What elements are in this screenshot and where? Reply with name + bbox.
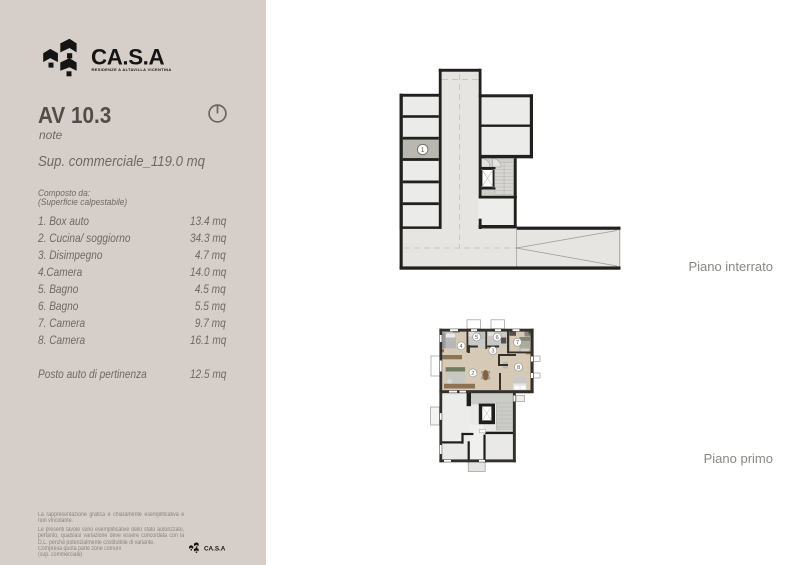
svg-text:3: 3 <box>491 348 494 355</box>
svg-text:CA.S.A: CA.S.A <box>91 45 164 70</box>
svg-text:1: 1 <box>421 147 425 154</box>
svg-text:6: 6 <box>496 334 499 341</box>
svg-text:RESIDENZE A ALTAVILLA VICENTIN: RESIDENZE A ALTAVILLA VICENTINA <box>92 67 172 72</box>
svg-text:8: 8 <box>517 364 520 371</box>
svg-text:CA.S.A: CA.S.A <box>204 546 226 553</box>
svg-text:5: 5 <box>475 335 478 341</box>
svg-text:7: 7 <box>516 340 519 346</box>
svg-text:2: 2 <box>471 370 474 377</box>
